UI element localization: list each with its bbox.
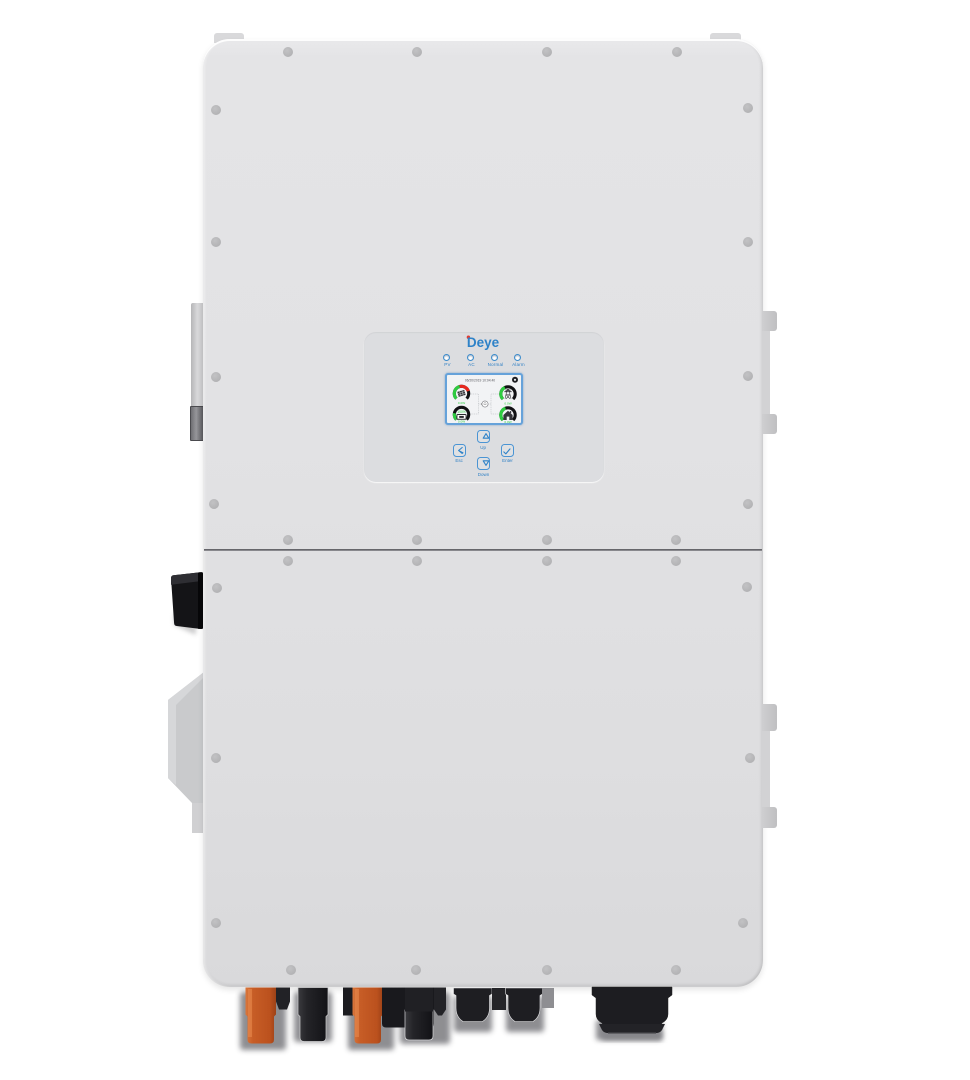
svg-text:0.0W: 0.0W: [504, 420, 511, 423]
svg-text:0.0W: 0.0W: [458, 401, 465, 405]
svg-text:0.0W: 0.0W: [458, 419, 465, 423]
svg-text:06/20/2019 10:04:40: 06/20/2019 10:04:40: [465, 379, 495, 383]
svg-text:100%: 100%: [457, 410, 465, 414]
svg-text:0.0W: 0.0W: [504, 401, 511, 405]
svg-text:Deye: Deye: [467, 335, 500, 350]
